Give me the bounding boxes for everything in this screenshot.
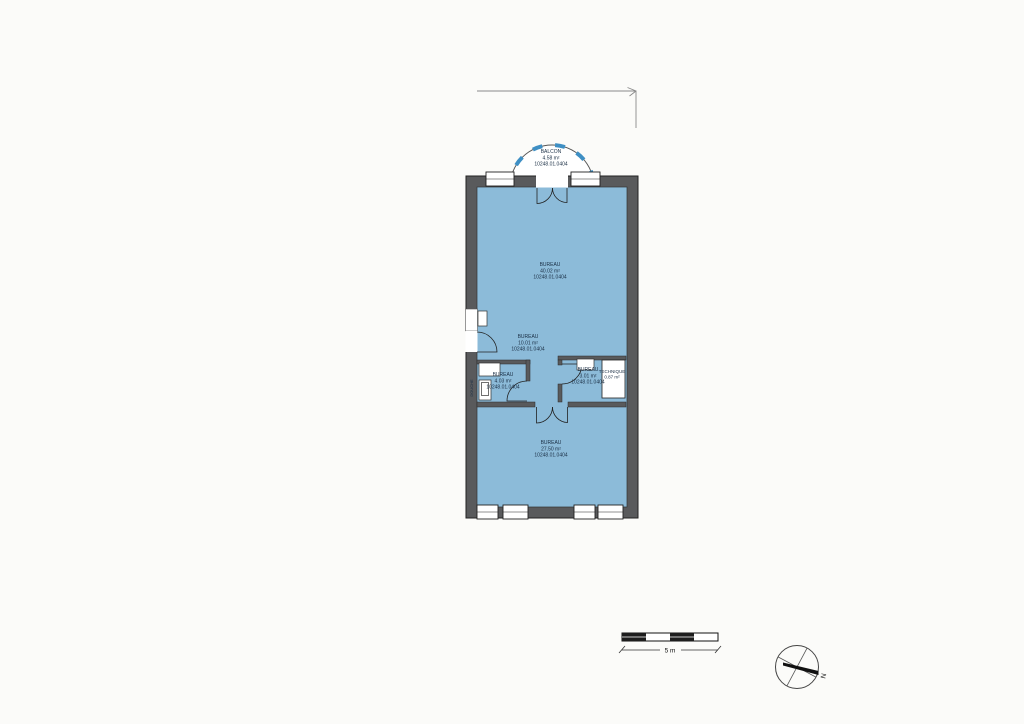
floor-area [477,187,627,507]
scale-label: 5 m [665,648,676,655]
left-wall-niche [466,309,478,331]
wc-bowl [482,383,489,396]
balcony-door-opening [536,176,568,188]
exterior-walls [466,176,638,518]
north-needle [783,663,819,676]
douche-label: DOUCHE [469,379,474,397]
entry-cabinet [478,311,487,326]
floor-plan-page: DOUCHE 5 m N BALCON 4.58 m² [0,0,1024,724]
north-label: N [819,672,827,679]
technique-shaft [602,360,625,398]
washbasin [577,359,594,370]
washbasin [479,363,500,376]
leader-line [477,88,636,129]
entrance-opening [466,331,478,352]
floor-plan-drawing: DOUCHE 5 m N [0,0,1024,724]
north-compass: N [768,638,827,696]
scale-bar: 5 m [619,633,721,655]
